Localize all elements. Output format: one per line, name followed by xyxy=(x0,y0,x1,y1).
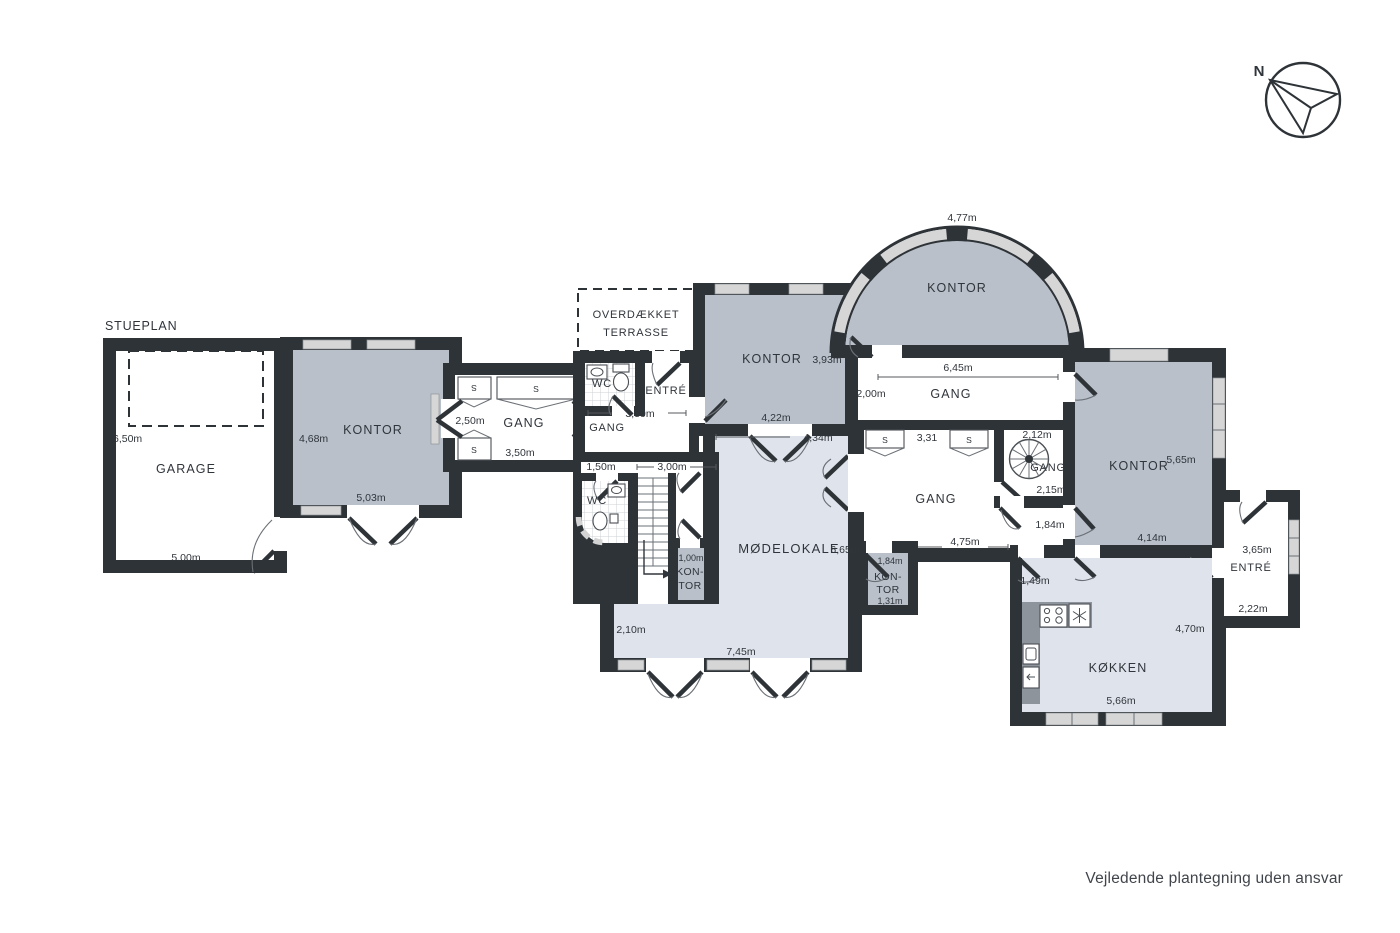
dim-gang-spiral-door: 1,84m xyxy=(1035,519,1064,531)
room-label-gang-spiral: GANG xyxy=(1030,462,1066,474)
kitchen-counter xyxy=(1022,628,1040,704)
dim-kontor-lille-vest: 1,00m xyxy=(678,553,703,563)
closet-label: S xyxy=(533,384,539,394)
toilet xyxy=(614,373,629,391)
dim-gang-spiral-bottom: 2,15m xyxy=(1036,484,1065,496)
dim-gang-vest-height: 2,50m xyxy=(455,415,484,427)
dim-modelokale-left: 2,10m xyxy=(616,624,645,636)
window xyxy=(812,660,846,670)
dim-kontor-lille-ost-top: 1,84m xyxy=(877,556,902,566)
room-label-gang-nord-vest: GANG xyxy=(589,422,625,434)
dim-garage-height: 6,50m xyxy=(113,433,142,445)
window xyxy=(1213,378,1225,458)
dim-kontor-ost-height: 5,65m xyxy=(1166,454,1195,466)
room-label-kontor-lille-ost-1: KON- xyxy=(874,571,902,583)
window xyxy=(789,284,823,294)
kitchen-sink xyxy=(1023,644,1039,664)
dim-gang-nord-height: 2,00m xyxy=(856,388,885,400)
window xyxy=(618,660,644,670)
room-label-terrasse-2: TERRASSE xyxy=(603,327,669,339)
room-label-entre-nord: ENTRÉ xyxy=(645,384,686,397)
sink xyxy=(608,484,625,497)
closet-label: S xyxy=(471,383,477,393)
room-label-terrasse-1: OVERDÆKKET xyxy=(593,309,680,321)
compass: N xyxy=(1254,63,1340,137)
dim-entre-ost-width: 2,22m xyxy=(1238,603,1267,615)
stove xyxy=(1040,605,1067,627)
room-label-entre-ost: ENTRÉ xyxy=(1230,561,1271,574)
dim-modelokale-top: 4,34m xyxy=(803,432,832,444)
dim-kontor-ost-width: 4,14m xyxy=(1137,532,1166,544)
dim-garage-width: 5,00m xyxy=(171,552,200,564)
closet-label: S xyxy=(966,435,972,445)
room-label-gang-central: GANG xyxy=(915,492,956,506)
dim-gang-central-top: 3,31 xyxy=(917,432,938,444)
room-label-kontor-ost: KONTOR xyxy=(1109,459,1169,473)
dim-kontor-vest-width: 5,03m xyxy=(356,492,385,504)
room-label-wc-nord: WC xyxy=(592,378,612,390)
dim-kokken-height: 4,70m xyxy=(1175,623,1204,635)
dim-wc-syd: 1,50m xyxy=(586,461,615,473)
window xyxy=(707,660,749,670)
room-label-gang-nord: GANG xyxy=(930,387,971,401)
plan-title: STUEPLAN xyxy=(105,319,177,333)
dim-kontor-vest-height: 4,68m xyxy=(299,433,328,445)
dim-trappe: 3,00m xyxy=(657,461,686,473)
window xyxy=(303,340,351,349)
room-label-kontor-lille-vest-2: TOR xyxy=(678,580,701,592)
room-label-wc-syd: WC xyxy=(587,495,607,507)
floorplan-page: N STUEPLAN Vejledende plantegning uden a… xyxy=(0,0,1400,933)
dim-gang-spiral-top: 2,12m xyxy=(1022,429,1051,441)
closet-label: S xyxy=(471,445,477,455)
dim-kontor-nord-width: 4,22m xyxy=(761,412,790,424)
toilet xyxy=(593,512,607,530)
room-label-garage: GARAGE xyxy=(156,462,216,476)
dim-entre-ost-top: 3,65m xyxy=(1242,544,1271,556)
room-label-gang-vest: GANG xyxy=(503,416,544,430)
compass-circle xyxy=(1266,63,1340,137)
dim-kontor-nord-height: 3,93m xyxy=(812,354,841,366)
dim-modelokale-width: 7,45m xyxy=(726,646,755,658)
dim-kontor-runde-arc: 4,77m xyxy=(947,212,976,224)
room-label-kontor-lille-vest-1: KON- xyxy=(676,566,704,578)
block-wc-nord xyxy=(573,351,705,462)
disclaimer-text: Vejledende plantegning uden ansvar xyxy=(1085,870,1343,887)
room-label-kontor-runde: KONTOR xyxy=(927,281,987,295)
window xyxy=(1289,520,1299,574)
window xyxy=(1110,349,1168,361)
window xyxy=(367,340,415,349)
dim-kokken-width: 5,66m xyxy=(1106,695,1135,707)
room-label-kontor-vest: KONTOR xyxy=(343,423,403,437)
dim-gang-nord-width: 6,45m xyxy=(943,362,972,374)
compass-north-label: N xyxy=(1254,63,1265,80)
room-garage xyxy=(103,338,287,573)
door-leaf xyxy=(1000,508,1020,528)
dim-gang-vest-width: 3,50m xyxy=(505,447,534,459)
closet-label: S xyxy=(882,435,888,445)
dim-gang-central-width: 4,75m xyxy=(950,536,979,548)
toilet-tank xyxy=(613,364,629,372)
window xyxy=(715,284,749,294)
dim-kontor-lille-ost-bottom: 1,31m xyxy=(877,596,902,606)
dim-kokken-top: 1,49m xyxy=(1020,575,1049,587)
room-label-kontor-nord: KONTOR xyxy=(742,352,802,366)
floorplan-svg: N STUEPLAN Vejledende plantegning uden a… xyxy=(0,0,1400,933)
dim-modelokale-height: 6,65m xyxy=(830,544,859,556)
sink xyxy=(587,365,607,379)
dim-gang-nord-vest: 3,39m xyxy=(625,408,654,420)
room-label-modelokale: MØDELOKALE xyxy=(738,541,840,556)
room-label-kontor-lille-ost-2: TOR xyxy=(876,584,899,596)
window xyxy=(301,506,341,515)
room-label-kokken: KØKKEN xyxy=(1089,661,1148,675)
